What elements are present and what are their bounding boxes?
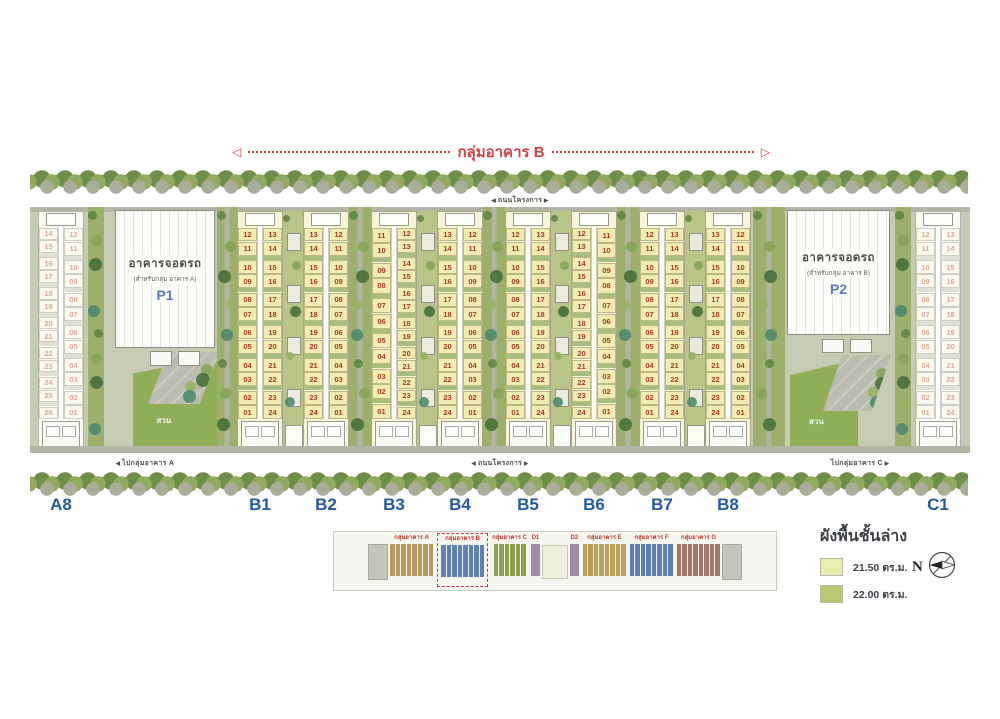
garden-gap bbox=[263, 288, 282, 292]
garden-gap bbox=[304, 386, 323, 390]
unit-cell: 17 bbox=[665, 293, 684, 307]
unit-cell: 05 bbox=[731, 340, 750, 354]
tree-icon bbox=[352, 300, 362, 310]
unit-cell: 16 bbox=[572, 287, 591, 299]
unit-cell: 15 bbox=[438, 260, 457, 274]
unit-cell: 08 bbox=[731, 293, 750, 307]
tree-icon bbox=[356, 270, 369, 283]
unit-column: 121110090807060504030201 bbox=[238, 227, 257, 419]
tree-icon bbox=[765, 359, 774, 368]
garden-gap bbox=[531, 354, 550, 358]
unit-cell: 03 bbox=[372, 369, 391, 384]
unit-cell: 16 bbox=[665, 274, 684, 288]
minimap-end-block bbox=[722, 544, 742, 580]
unit-cell: 07 bbox=[372, 298, 391, 313]
unit-cell: 24 bbox=[304, 405, 323, 419]
tree-icon bbox=[626, 241, 637, 252]
garden-gap bbox=[438, 256, 457, 260]
tree-icon bbox=[898, 235, 909, 246]
garden-gap bbox=[572, 372, 591, 376]
p2-title: อาคารจอดรถ bbox=[802, 249, 875, 267]
minimap-group: กลุ่มอาคาร G bbox=[677, 533, 720, 576]
unit-column: 131415161718192021222324 bbox=[304, 227, 323, 419]
minimap-building-strip bbox=[452, 545, 457, 577]
minimap-building-strip bbox=[646, 544, 651, 576]
garden-gap bbox=[238, 386, 257, 390]
lobby-room bbox=[46, 426, 60, 437]
garden-gap bbox=[372, 258, 391, 262]
lobby-room bbox=[461, 426, 475, 437]
minimap-group-label: กลุ่มอาคาร C bbox=[492, 533, 527, 543]
unit-cell: 19 bbox=[438, 325, 457, 339]
unit-cell: 10 bbox=[372, 243, 391, 258]
garden-gap bbox=[941, 288, 960, 292]
garden-gap bbox=[39, 283, 58, 287]
unit-cell: 01 bbox=[64, 405, 83, 419]
unit-cell: 07 bbox=[640, 307, 659, 321]
tree-icon bbox=[617, 211, 626, 220]
unit-cell: 11 bbox=[64, 242, 83, 256]
garden-gap bbox=[941, 256, 960, 260]
unit-cell: 08 bbox=[506, 293, 525, 307]
legend-swatch bbox=[820, 585, 843, 603]
lobby-room bbox=[939, 426, 953, 437]
lobby bbox=[509, 421, 547, 450]
service-box bbox=[555, 233, 569, 251]
unit-cell: 19 bbox=[706, 325, 725, 339]
unit-cell: 23 bbox=[397, 390, 416, 402]
unit-cell: 06 bbox=[372, 314, 391, 329]
minimap-building-strip bbox=[480, 545, 485, 577]
stair-core bbox=[647, 213, 677, 226]
garden-gap bbox=[640, 386, 659, 390]
unit-cell: 04 bbox=[916, 358, 935, 372]
unit-cell: 22 bbox=[941, 372, 960, 386]
tree-icon bbox=[485, 329, 497, 341]
unit-cell: 10 bbox=[640, 260, 659, 274]
tree-icon bbox=[758, 300, 768, 310]
unit-column: 121110090807060504030201 bbox=[64, 227, 83, 419]
unit-cell: 03 bbox=[463, 372, 482, 386]
unit-cells: 1314151617181920212223241211100908070605… bbox=[706, 227, 750, 419]
stair-core bbox=[379, 213, 409, 226]
garden-gap bbox=[238, 354, 257, 358]
tree-icon bbox=[88, 305, 100, 317]
unit-cell: 12 bbox=[329, 228, 348, 242]
unit-cell: 16 bbox=[397, 287, 416, 299]
unit-cell: 16 bbox=[706, 274, 725, 288]
unit-cell: 19 bbox=[941, 325, 960, 339]
tree-column-right bbox=[895, 207, 911, 453]
garden-gap bbox=[329, 288, 348, 292]
minimap-building-strip bbox=[407, 544, 412, 576]
unit-column: 14151617181920212223242526 bbox=[39, 227, 58, 419]
garden-gap bbox=[263, 354, 282, 358]
building-label-b8: B8 bbox=[717, 495, 739, 515]
unit-cell: 07 bbox=[506, 307, 525, 321]
unit-cell: 17 bbox=[39, 270, 58, 282]
minimap-building-strip bbox=[447, 545, 452, 577]
minimap-building-strip bbox=[412, 544, 417, 576]
unit-cell: 10 bbox=[506, 260, 525, 274]
building-label-b6: B6 bbox=[583, 495, 605, 515]
garden-gap bbox=[597, 329, 616, 333]
legend-label: 22.00 ตร.ม. bbox=[853, 586, 907, 603]
garden-gap bbox=[506, 321, 525, 325]
tree-icon bbox=[91, 353, 102, 364]
unit-cell: 22 bbox=[39, 347, 58, 359]
tree-icon bbox=[218, 270, 231, 283]
unit-cell: 11 bbox=[506, 242, 525, 256]
unit-cell: 12 bbox=[731, 228, 750, 242]
unit-cell: 01 bbox=[329, 405, 348, 419]
lobby bbox=[241, 421, 279, 450]
tree-icon bbox=[765, 329, 777, 341]
stair-core bbox=[923, 213, 953, 226]
minimap-group-label: D1 bbox=[532, 533, 540, 543]
building-tower-C1: 1211100908070605040302011314151617181920… bbox=[915, 211, 961, 449]
garden-gap bbox=[640, 288, 659, 292]
unit-cell: 12 bbox=[572, 228, 591, 240]
garden-gap bbox=[397, 342, 416, 346]
unit-cell: 12 bbox=[506, 228, 525, 242]
lobby bbox=[919, 421, 957, 450]
unit-cell: 09 bbox=[640, 274, 659, 288]
unit-cell: 18 bbox=[304, 307, 323, 321]
garden-gap bbox=[397, 313, 416, 317]
garden-gap bbox=[506, 354, 525, 358]
unit-cell: 13 bbox=[304, 228, 323, 242]
unit-cell: 12 bbox=[463, 228, 482, 242]
group-b-title: กลุ่มอาคาร B bbox=[457, 140, 544, 164]
unit-column: 131415161718192021222324 bbox=[706, 227, 725, 419]
tree-icon bbox=[359, 388, 370, 399]
unit-cell: 24 bbox=[572, 407, 591, 419]
unit-cell: 04 bbox=[640, 358, 659, 372]
garden-gap bbox=[397, 402, 416, 406]
arrow-right-icon: ▷ bbox=[761, 146, 770, 158]
unit-cell: 11 bbox=[238, 242, 257, 256]
tree-icon bbox=[492, 241, 503, 252]
unit-cell: 01 bbox=[506, 405, 525, 419]
unit-cell: 06 bbox=[916, 325, 935, 339]
unit-cell: 15 bbox=[665, 260, 684, 274]
stair-core bbox=[245, 213, 275, 226]
minimap-group-label: กลุ่มอาคาร E bbox=[587, 533, 622, 543]
unit-cell: 22 bbox=[665, 372, 684, 386]
unit-cell: 03 bbox=[238, 372, 257, 386]
unit-column: 121110090807060504030201 bbox=[731, 227, 750, 419]
minimap-group: กลุ่มอาคาร B bbox=[437, 533, 488, 587]
minimap-building-strip bbox=[652, 544, 657, 576]
tree-icon bbox=[283, 215, 290, 222]
unit-cell: 20 bbox=[438, 340, 457, 354]
unit-cell: 20 bbox=[665, 340, 684, 354]
unit-cell: 23 bbox=[438, 391, 457, 405]
tree-icon bbox=[692, 306, 703, 317]
minimap-group: กลุ่มอาคาร E bbox=[583, 533, 626, 576]
unit-cell: 09 bbox=[372, 263, 391, 278]
garden-gap bbox=[941, 354, 960, 358]
minimap-building-strip bbox=[474, 545, 479, 577]
tree-icon bbox=[685, 215, 692, 222]
lobby-room bbox=[595, 426, 609, 437]
unit-cell: 18 bbox=[263, 307, 282, 321]
garden-left-label: สวน bbox=[157, 414, 172, 427]
building-tower-B3: 1110090807060504030201121314151617181920… bbox=[371, 211, 417, 449]
tree-icon bbox=[694, 261, 703, 270]
unit-cell: 23 bbox=[304, 391, 323, 405]
tree-icon bbox=[627, 388, 638, 399]
minimap-building-strip bbox=[521, 544, 526, 576]
garden-gap bbox=[329, 256, 348, 260]
tree-icon bbox=[763, 418, 776, 431]
unit-cell: 02 bbox=[597, 384, 616, 399]
unit-cell: 13 bbox=[706, 228, 725, 242]
overview-minimap: กลุ่มอาคาร Aกลุ่มอาคาร Bกลุ่มอาคาร CD1D2… bbox=[333, 531, 777, 591]
unit-cell: 15 bbox=[572, 270, 591, 282]
building-tower-B8: 1314151617181920212223241211100908070605… bbox=[705, 211, 751, 449]
garden-gap bbox=[916, 288, 935, 292]
unit-cell: 07 bbox=[597, 298, 616, 313]
garden-gap bbox=[665, 321, 684, 325]
tree-icon bbox=[898, 282, 908, 292]
unit-cell: 04 bbox=[731, 358, 750, 372]
unit-cell: 05 bbox=[372, 333, 391, 348]
minimap-group-label: กลุ่มอาคาร B bbox=[445, 534, 480, 544]
unit-cell: 07 bbox=[64, 307, 83, 321]
minimap-group: กลุ่มอาคาร C bbox=[492, 533, 527, 576]
tree-icon bbox=[764, 241, 775, 252]
garden-gap bbox=[665, 386, 684, 390]
tree-icon bbox=[753, 211, 762, 220]
garden-gap bbox=[438, 321, 457, 325]
minimap-strips bbox=[441, 545, 484, 577]
garden-gap bbox=[64, 321, 83, 325]
unit-cell: 23 bbox=[941, 391, 960, 405]
unit-cell: 09 bbox=[506, 274, 525, 288]
tree-icon bbox=[895, 305, 907, 317]
unit-cell: 06 bbox=[329, 325, 348, 339]
minimap-building-strip bbox=[688, 544, 693, 576]
green-strip bbox=[483, 207, 505, 453]
unit-cell: 24 bbox=[531, 405, 550, 419]
courtyard bbox=[685, 211, 705, 449]
building-tower-B1: 1211100908070605040302011314151617181920… bbox=[237, 211, 283, 449]
unit-cells: 1211100908070605040302011314151617181920… bbox=[916, 227, 960, 419]
unit-cell: 13 bbox=[572, 240, 591, 252]
tree-icon bbox=[92, 400, 102, 410]
unit-cell: 16 bbox=[263, 274, 282, 288]
unit-column: 131415161718192021222324 bbox=[665, 227, 684, 419]
minimap-group: D2 bbox=[570, 533, 579, 576]
unit-cell: 04 bbox=[64, 358, 83, 372]
unit-cell: 02 bbox=[329, 391, 348, 405]
lobby-room bbox=[713, 426, 727, 437]
group-b-extent-arrow: ◁ กลุ่มอาคาร B ▷ bbox=[232, 142, 770, 162]
unit-column: 121110090807060504030201 bbox=[916, 227, 935, 419]
dashed-line bbox=[552, 151, 754, 153]
legend-item: 21.50 ตร.ม. bbox=[820, 558, 998, 576]
stair-core bbox=[579, 213, 609, 226]
service-box bbox=[689, 233, 703, 251]
unit-cell: 17 bbox=[304, 293, 323, 307]
tree-column-left bbox=[88, 207, 104, 453]
garden-gap bbox=[304, 354, 323, 358]
service-box bbox=[178, 351, 200, 366]
minimap-building-strip bbox=[594, 544, 599, 576]
garden-gap bbox=[706, 288, 725, 292]
minimap-building-strip bbox=[668, 544, 673, 576]
unit-cell: 10 bbox=[916, 260, 935, 274]
garden-gap bbox=[263, 386, 282, 390]
unit-cell: 18 bbox=[941, 307, 960, 321]
minimap-group-label: D2 bbox=[571, 533, 579, 543]
minimap-building-strip bbox=[510, 544, 515, 576]
green-strip bbox=[753, 207, 785, 453]
garden-gap bbox=[304, 256, 323, 260]
garden-gap bbox=[640, 354, 659, 358]
minimap-building-strip bbox=[641, 544, 646, 576]
unit-cells: 1211100908070605040302011314151617181920… bbox=[640, 227, 684, 419]
tree-icon bbox=[488, 359, 497, 368]
minimap-building-strip bbox=[616, 544, 621, 576]
unit-cell: 17 bbox=[531, 293, 550, 307]
garden-gap bbox=[706, 321, 725, 325]
unit-cell: 08 bbox=[329, 293, 348, 307]
unit-cell: 21 bbox=[304, 358, 323, 372]
unit-cell: 05 bbox=[329, 340, 348, 354]
unit-cell: 22 bbox=[304, 372, 323, 386]
unit-cell: 04 bbox=[238, 358, 257, 372]
minimap-group: กลุ่มอาคาร F bbox=[630, 533, 673, 576]
garden-gap bbox=[397, 283, 416, 287]
unit-cell: 02 bbox=[506, 391, 525, 405]
minimap-building-strip bbox=[458, 545, 463, 577]
legend-label: 21.50 ตร.ม. bbox=[853, 559, 907, 576]
service-box bbox=[421, 233, 435, 251]
garden-gap bbox=[916, 386, 935, 390]
entrance-pavilion bbox=[687, 425, 705, 447]
unit-cell: 17 bbox=[263, 293, 282, 307]
unit-cell: 19 bbox=[263, 325, 282, 339]
garden-gap bbox=[397, 253, 416, 257]
lobby bbox=[709, 421, 747, 450]
service-box bbox=[287, 233, 301, 251]
unit-cell: 15 bbox=[706, 260, 725, 274]
unit-cell: 06 bbox=[463, 325, 482, 339]
unit-cell: 10 bbox=[64, 260, 83, 274]
minimap-building-strip bbox=[677, 544, 682, 576]
unit-cell: 05 bbox=[916, 340, 935, 354]
garden-gap bbox=[39, 402, 58, 406]
garden-gap bbox=[329, 321, 348, 325]
minimap-building-block bbox=[570, 544, 579, 576]
unit-cell: 02 bbox=[238, 391, 257, 405]
tree-icon bbox=[90, 376, 103, 389]
minimap-building-block bbox=[531, 544, 540, 576]
building-label-b4: B4 bbox=[449, 495, 471, 515]
garden-gap bbox=[597, 258, 616, 262]
unit-cell: 18 bbox=[531, 307, 550, 321]
site-plan-page: ◁ กลุ่มอาคาร B ▷ ถนนโครงการ ถนนโครงการ ไ… bbox=[0, 0, 1000, 719]
unit-cell: 06 bbox=[506, 325, 525, 339]
legend-swatch bbox=[820, 558, 843, 576]
garden-gap bbox=[706, 354, 725, 358]
minimap-building-strip bbox=[505, 544, 510, 576]
unit-cell: 08 bbox=[238, 293, 257, 307]
entrance-pavilion bbox=[419, 425, 437, 447]
tree-icon bbox=[897, 376, 910, 389]
unit-cell: 20 bbox=[706, 340, 725, 354]
green-strip bbox=[617, 207, 639, 453]
unit-cells: 1314151617181920212223241211100908070605… bbox=[438, 227, 482, 419]
unit-cell: 07 bbox=[238, 307, 257, 321]
unit-cell: 04 bbox=[329, 358, 348, 372]
garden-gap bbox=[372, 329, 391, 333]
unit-cell: 17 bbox=[572, 300, 591, 312]
unit-cell: 21 bbox=[665, 358, 684, 372]
garden-gap bbox=[372, 399, 391, 403]
unit-cell: 24 bbox=[263, 405, 282, 419]
minimap-building-strip bbox=[605, 544, 610, 576]
garden-gap bbox=[572, 313, 591, 317]
garden-gap bbox=[731, 354, 750, 358]
tree-icon bbox=[349, 211, 358, 220]
garden-gap bbox=[597, 399, 616, 403]
unit-cell: 08 bbox=[640, 293, 659, 307]
unit-cell: 15 bbox=[531, 260, 550, 274]
garden-gap bbox=[572, 402, 591, 406]
courtyard bbox=[417, 211, 437, 449]
tree-icon bbox=[183, 390, 196, 403]
service-box bbox=[421, 285, 435, 303]
minimap-building-strip bbox=[588, 544, 593, 576]
unit-cell: 09 bbox=[597, 263, 616, 278]
tree-icon bbox=[226, 300, 236, 310]
site-plan-canvas: อาคารจอดรถ (สำหรับกลุ่ม อาคาร A) P1 อาคา… bbox=[30, 207, 970, 453]
building-label-b1: B1 bbox=[249, 495, 271, 515]
unit-column: 131415161718192021222324 bbox=[531, 227, 550, 419]
garden-gap bbox=[531, 256, 550, 260]
unit-cell: 02 bbox=[916, 391, 935, 405]
unit-cell: 07 bbox=[916, 307, 935, 321]
lobby-room bbox=[379, 426, 393, 437]
unit-cell: 11 bbox=[329, 242, 348, 256]
unit-cell: 11 bbox=[463, 242, 482, 256]
unit-cell: 01 bbox=[916, 405, 935, 419]
parking-building-p1: อาคารจอดรถ (สำหรับกลุ่ม อาคาร A) P1 bbox=[115, 210, 215, 348]
unit-cell: 21 bbox=[438, 358, 457, 372]
unit-cell: 08 bbox=[463, 293, 482, 307]
unit-cell: 21 bbox=[941, 358, 960, 372]
garden-gap bbox=[665, 256, 684, 260]
unit-cell: 13 bbox=[941, 228, 960, 242]
lobby-room bbox=[729, 426, 743, 437]
unit-cell: 21 bbox=[572, 360, 591, 372]
unit-cell: 21 bbox=[706, 358, 725, 372]
tree-icon bbox=[899, 400, 909, 410]
garden-gap bbox=[531, 288, 550, 292]
building-tower-B2: 1314151617181920212223241211100908070605… bbox=[303, 211, 349, 449]
unit-cells: 1213141516171819202122232411100908070605… bbox=[572, 227, 616, 419]
lobby bbox=[307, 421, 345, 450]
unit-cell: 13 bbox=[263, 228, 282, 242]
unit-cell: 14 bbox=[665, 242, 684, 256]
garden-gap bbox=[238, 256, 257, 260]
building-label-b3: B3 bbox=[383, 495, 405, 515]
garden-gap bbox=[572, 283, 591, 287]
